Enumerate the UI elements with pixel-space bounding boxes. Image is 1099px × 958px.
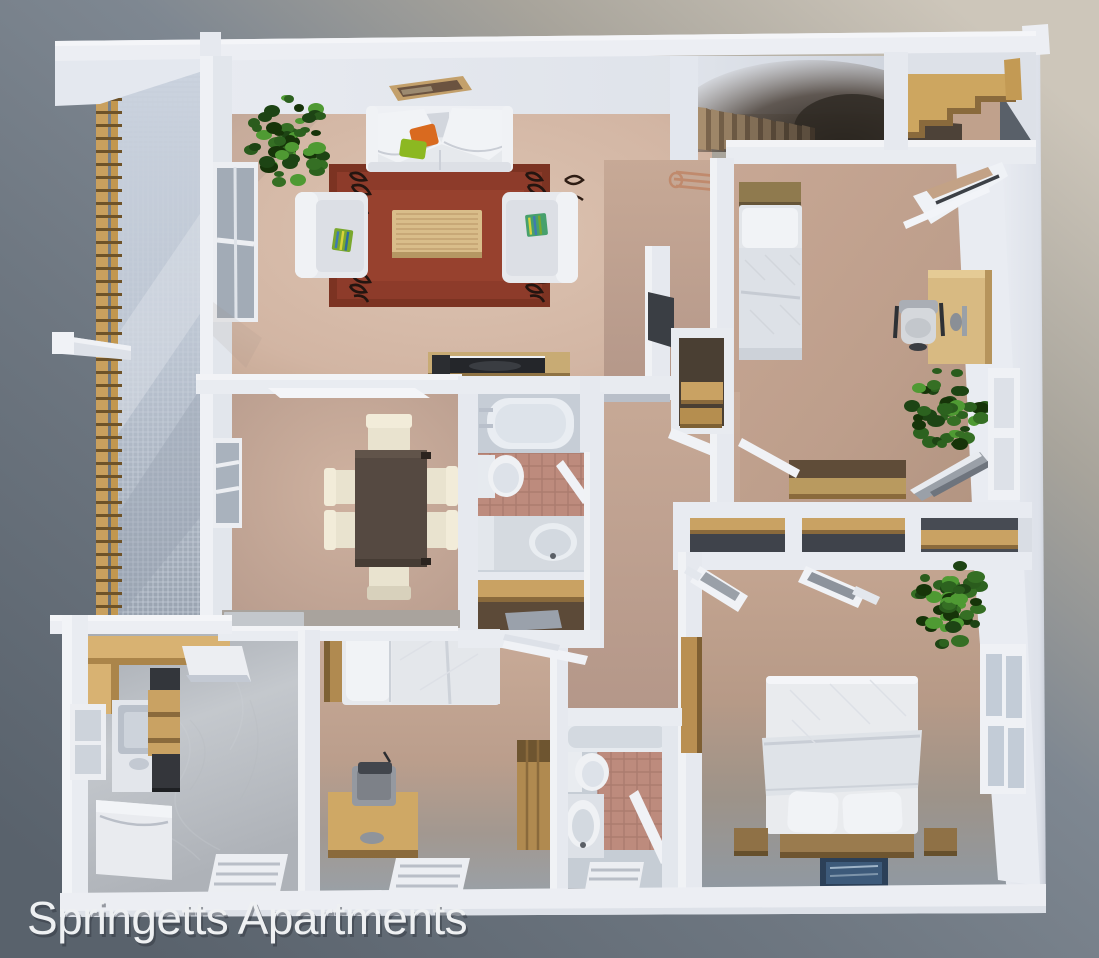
svg-text:Springetts Apartments: Springetts Apartments — [27, 892, 467, 944]
